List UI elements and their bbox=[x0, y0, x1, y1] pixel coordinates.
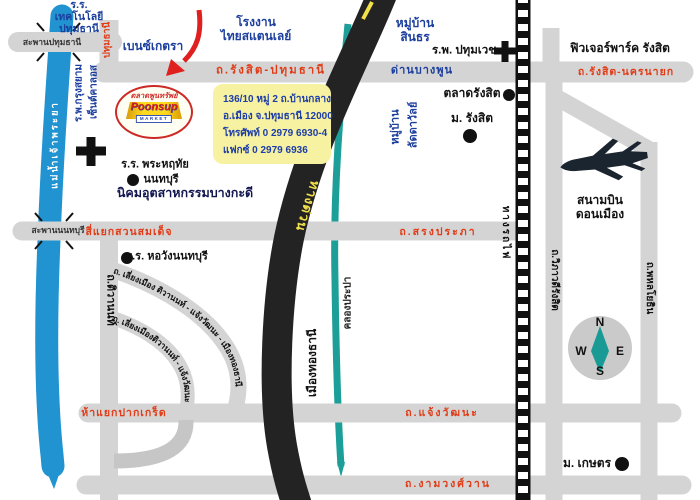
chao-phraya-river bbox=[47, 16, 62, 466]
river-label: แม่น้ำเจ้าพระยา bbox=[51, 101, 62, 189]
info-address-line2: อ.เมือง จ.ปทุมธานี 12000 bbox=[223, 108, 331, 125]
road-chaengwattana-label: ถ.แจ้งวัฒนะ bbox=[405, 407, 479, 419]
benz-ketra-label: เบนซ์เกตรา bbox=[123, 40, 183, 54]
road-phahonyothin-label: ถ.พหลโยธิน bbox=[643, 262, 655, 314]
info-address-line1: 136/10 หมู่ 2 ถ.บ้านกลาง bbox=[223, 91, 331, 108]
school-phraharuethai-dot bbox=[127, 174, 139, 186]
road-rangsit-pathumthani-label: ถ.รังสิต-ปทุมธานี bbox=[216, 64, 326, 77]
info-phone: โทรศัพท์ 0 2979 6930-4 bbox=[223, 125, 331, 142]
khlong-prapa-label: คลองประปา bbox=[342, 277, 354, 330]
university-rangsit-dot bbox=[463, 129, 477, 143]
compass-s-label: S bbox=[596, 365, 604, 379]
airplane-icon bbox=[557, 134, 650, 188]
dan-bang-phun-label: ด่านบางพูน bbox=[391, 65, 453, 78]
village-sinthorn-label: หมู่บ้าน สินธร bbox=[396, 17, 434, 45]
road-tiwanon-label: ถ.ติวานนท์ bbox=[104, 274, 117, 326]
future-park-label: ฟิวเจอร์พาร์ค รังสิต bbox=[570, 42, 670, 56]
compass-e-label: E bbox=[616, 345, 624, 359]
school-horwang-label: ร.ร. หอวังนนทบุรี bbox=[126, 251, 208, 264]
junction-suan-somdet-label: สี่แยกสวนสมเด็จ bbox=[85, 226, 172, 238]
poonsup-market-logo: ตลาดพูนทรัพย์ Poonsup MARKET bbox=[115, 85, 193, 139]
university-kasetsart-label: ม. เกษตร bbox=[563, 457, 611, 471]
compass-n-label: N bbox=[596, 316, 605, 330]
market-rangsit-label: ตลาดรังสิต bbox=[443, 87, 500, 101]
road-ngamwongwan-label: ถ.งามวงศ์วาน bbox=[405, 478, 491, 490]
bridge-nonthaburi-label: สะพานนนทบุรี bbox=[31, 226, 84, 236]
road-pakkret-loop bbox=[114, 420, 186, 461]
hospital-krungsiam-cross-icon bbox=[76, 137, 106, 166]
logo-brand-sub: MARKET bbox=[136, 115, 172, 123]
market-rangsit-dot bbox=[503, 89, 515, 101]
road-diagonal-phahon bbox=[554, 96, 650, 150]
logo-brand-name: Poonsup bbox=[117, 101, 191, 113]
school-technology-label: ร.ร. เทคโนโลยี ปทุมธานี bbox=[55, 0, 104, 35]
info-fax: แฟกซ์ 0 2979 6936 bbox=[223, 142, 331, 159]
compass-w-label: W bbox=[575, 345, 586, 359]
hospital-pathumvej-label: ร.พ. ปทุมเวช bbox=[432, 44, 496, 57]
red-arrow-shaft bbox=[184, 10, 200, 61]
road-song-prapha-label: ถ.สรงประภา bbox=[399, 226, 476, 238]
junction-pakkret-label: ห้าแยกปากเกร็ด bbox=[81, 407, 166, 419]
hospital-krungsiam-line1-label: ร.พ.กรุงสยาม bbox=[73, 64, 85, 122]
village-laddawan-line2-label: ลัดดาวัลย์ bbox=[408, 102, 421, 149]
school-phraharuethai-line1-label: ร.ร. พระหฤทัย bbox=[121, 159, 189, 172]
road-rangsit-nakhonnayok-label: ถ.รังสิต-นครนายก bbox=[578, 66, 674, 78]
road-vibhavadi-label: ถ.วิภาวดีรังสิต bbox=[548, 249, 560, 311]
road-pathumthani-label: ปทุมธานี bbox=[103, 22, 114, 58]
university-rangsit-label: ม. รังสิต bbox=[451, 112, 493, 126]
village-laddawan-line1-label: หมู่บ้าน bbox=[390, 109, 403, 144]
muang-thong-thani-label: เมืองทองธานี bbox=[306, 329, 320, 397]
canal-tip bbox=[337, 462, 345, 477]
hospital-krungsiam-line2-label: เซ็นต์คาลอส bbox=[88, 65, 100, 119]
airport-label: สนามบิน ดอนเมือง bbox=[576, 194, 624, 222]
bridge-pathumthani-label: สะพานปทุมธานี bbox=[23, 38, 81, 48]
address-info-box: 136/10 หมู่ 2 ถ.บ้านกลาง อ.เมือง จ.ปทุมธ… bbox=[213, 84, 331, 164]
university-kasetsart-dot bbox=[615, 457, 629, 471]
school-phraharuethai-line2-label: นนทบุรี bbox=[143, 174, 178, 187]
railway-label: ทางรถไฟ bbox=[499, 206, 511, 261]
hospital-pathumvej-cross-icon bbox=[494, 41, 516, 62]
factory-thai-stanley-label: โรงงาน ไทยสแตนเลย์ bbox=[221, 16, 292, 44]
map-canvas: ถ. เลี่ยงเมือง ติวานนท์ - แจ้งวัฒนะ - เม… bbox=[0, 0, 700, 500]
industrial-estate-label: นิคมอุตสาหกรรมบางกะดี bbox=[117, 186, 253, 200]
